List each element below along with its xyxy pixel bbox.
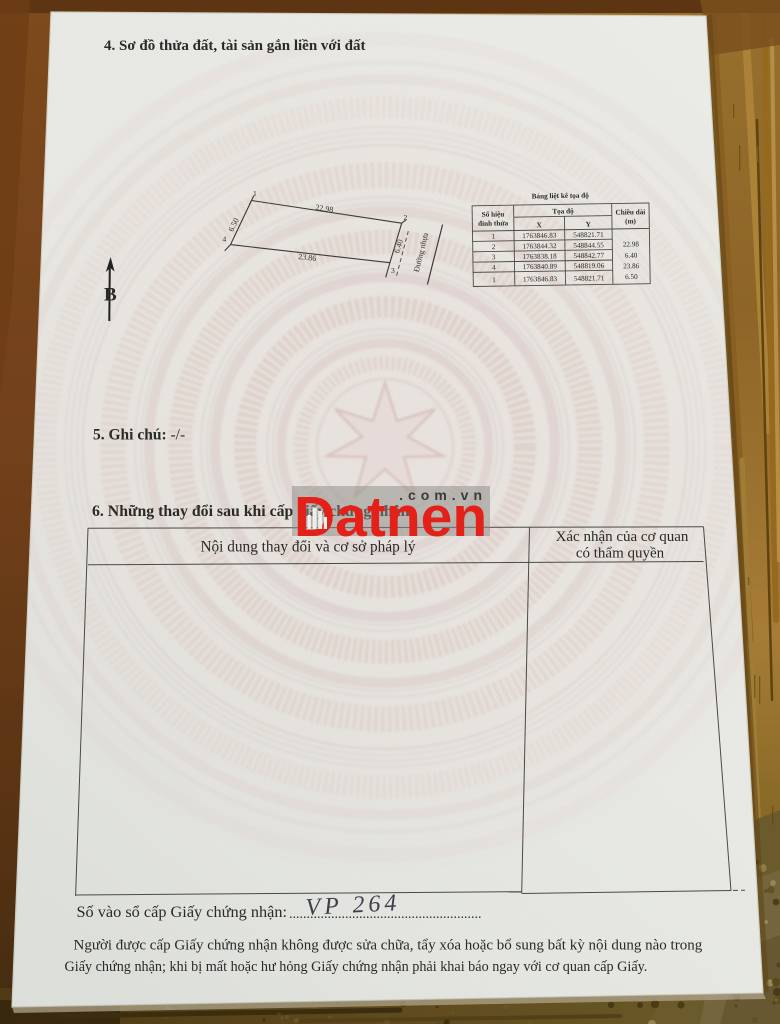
svg-text:có thẩm quyền: có thẩm quyền	[576, 546, 665, 562]
svg-text:Bảng liệt kê tọa độ: Bảng liệt kê tọa độ	[532, 192, 590, 201]
svg-text:1763846.83: 1763846.83	[523, 275, 558, 284]
svg-text:548819.06: 548819.06	[574, 262, 605, 270]
svg-text:548821.71: 548821.71	[573, 231, 604, 239]
svg-text:6.40: 6.40	[625, 252, 638, 260]
svg-text:6.50: 6.50	[625, 273, 638, 281]
svg-text:548842.77: 548842.77	[573, 252, 604, 260]
svg-text:1763840.89: 1763840.89	[523, 263, 558, 272]
svg-text:3: 3	[391, 266, 395, 275]
svg-text:3: 3	[492, 253, 496, 261]
svg-text:Người được cấp Giấy chứng nhận: Người được cấp Giấy chứng nhận không đượ…	[74, 938, 703, 954]
svg-text:Datnen: Datnen	[294, 485, 487, 549]
svg-text:1: 1	[492, 276, 496, 284]
svg-text:Giấy chứng nhận; khi bị mất ho: Giấy chứng nhận; khi bị mất hoặc hư hỏng…	[65, 959, 648, 975]
svg-text:22.98: 22.98	[623, 240, 640, 248]
svg-text:1763846.83: 1763846.83	[522, 232, 557, 241]
svg-text:2: 2	[404, 213, 408, 222]
svg-text:23.86: 23.86	[623, 262, 640, 270]
svg-text:1: 1	[491, 233, 495, 241]
svg-text:Chiều dài: Chiều dài	[615, 207, 645, 216]
svg-text:1763844.32: 1763844.32	[522, 242, 557, 251]
svg-text:1: 1	[253, 189, 257, 198]
svg-text:Y: Y	[586, 221, 592, 229]
svg-text:B: B	[104, 285, 117, 306]
svg-text:2: 2	[492, 243, 496, 251]
svg-text:Tọa độ: Tọa độ	[552, 207, 574, 215]
svg-text:5. Ghi chú: -/-: 5. Ghi chú: -/-	[93, 427, 185, 444]
svg-text:đỉnh thửa: đỉnh thửa	[478, 219, 509, 227]
svg-text:(m): (m)	[625, 217, 637, 225]
svg-text:548844.55: 548844.55	[573, 241, 604, 249]
svg-text:1763838.18: 1763838.18	[523, 252, 558, 261]
svg-text:VP 264: VP 264	[305, 890, 401, 921]
svg-text:548821.71: 548821.71	[574, 274, 605, 282]
svg-text:Xác nhận của cơ quan: Xác nhận của cơ quan	[556, 529, 689, 545]
svg-text:4. Sơ đồ thửa đất, tài sản gắn: 4. Sơ đồ thửa đất, tài sản gắn liền với …	[104, 38, 366, 54]
svg-text:Số vào sổ cấp Giấy chứng nhận:: Số vào sổ cấp Giấy chứng nhận:	[77, 902, 288, 921]
svg-text:X: X	[537, 221, 543, 229]
svg-text:4: 4	[223, 235, 227, 244]
svg-text:Số hiệu: Số hiệu	[482, 209, 505, 218]
svg-text:4: 4	[492, 264, 496, 272]
